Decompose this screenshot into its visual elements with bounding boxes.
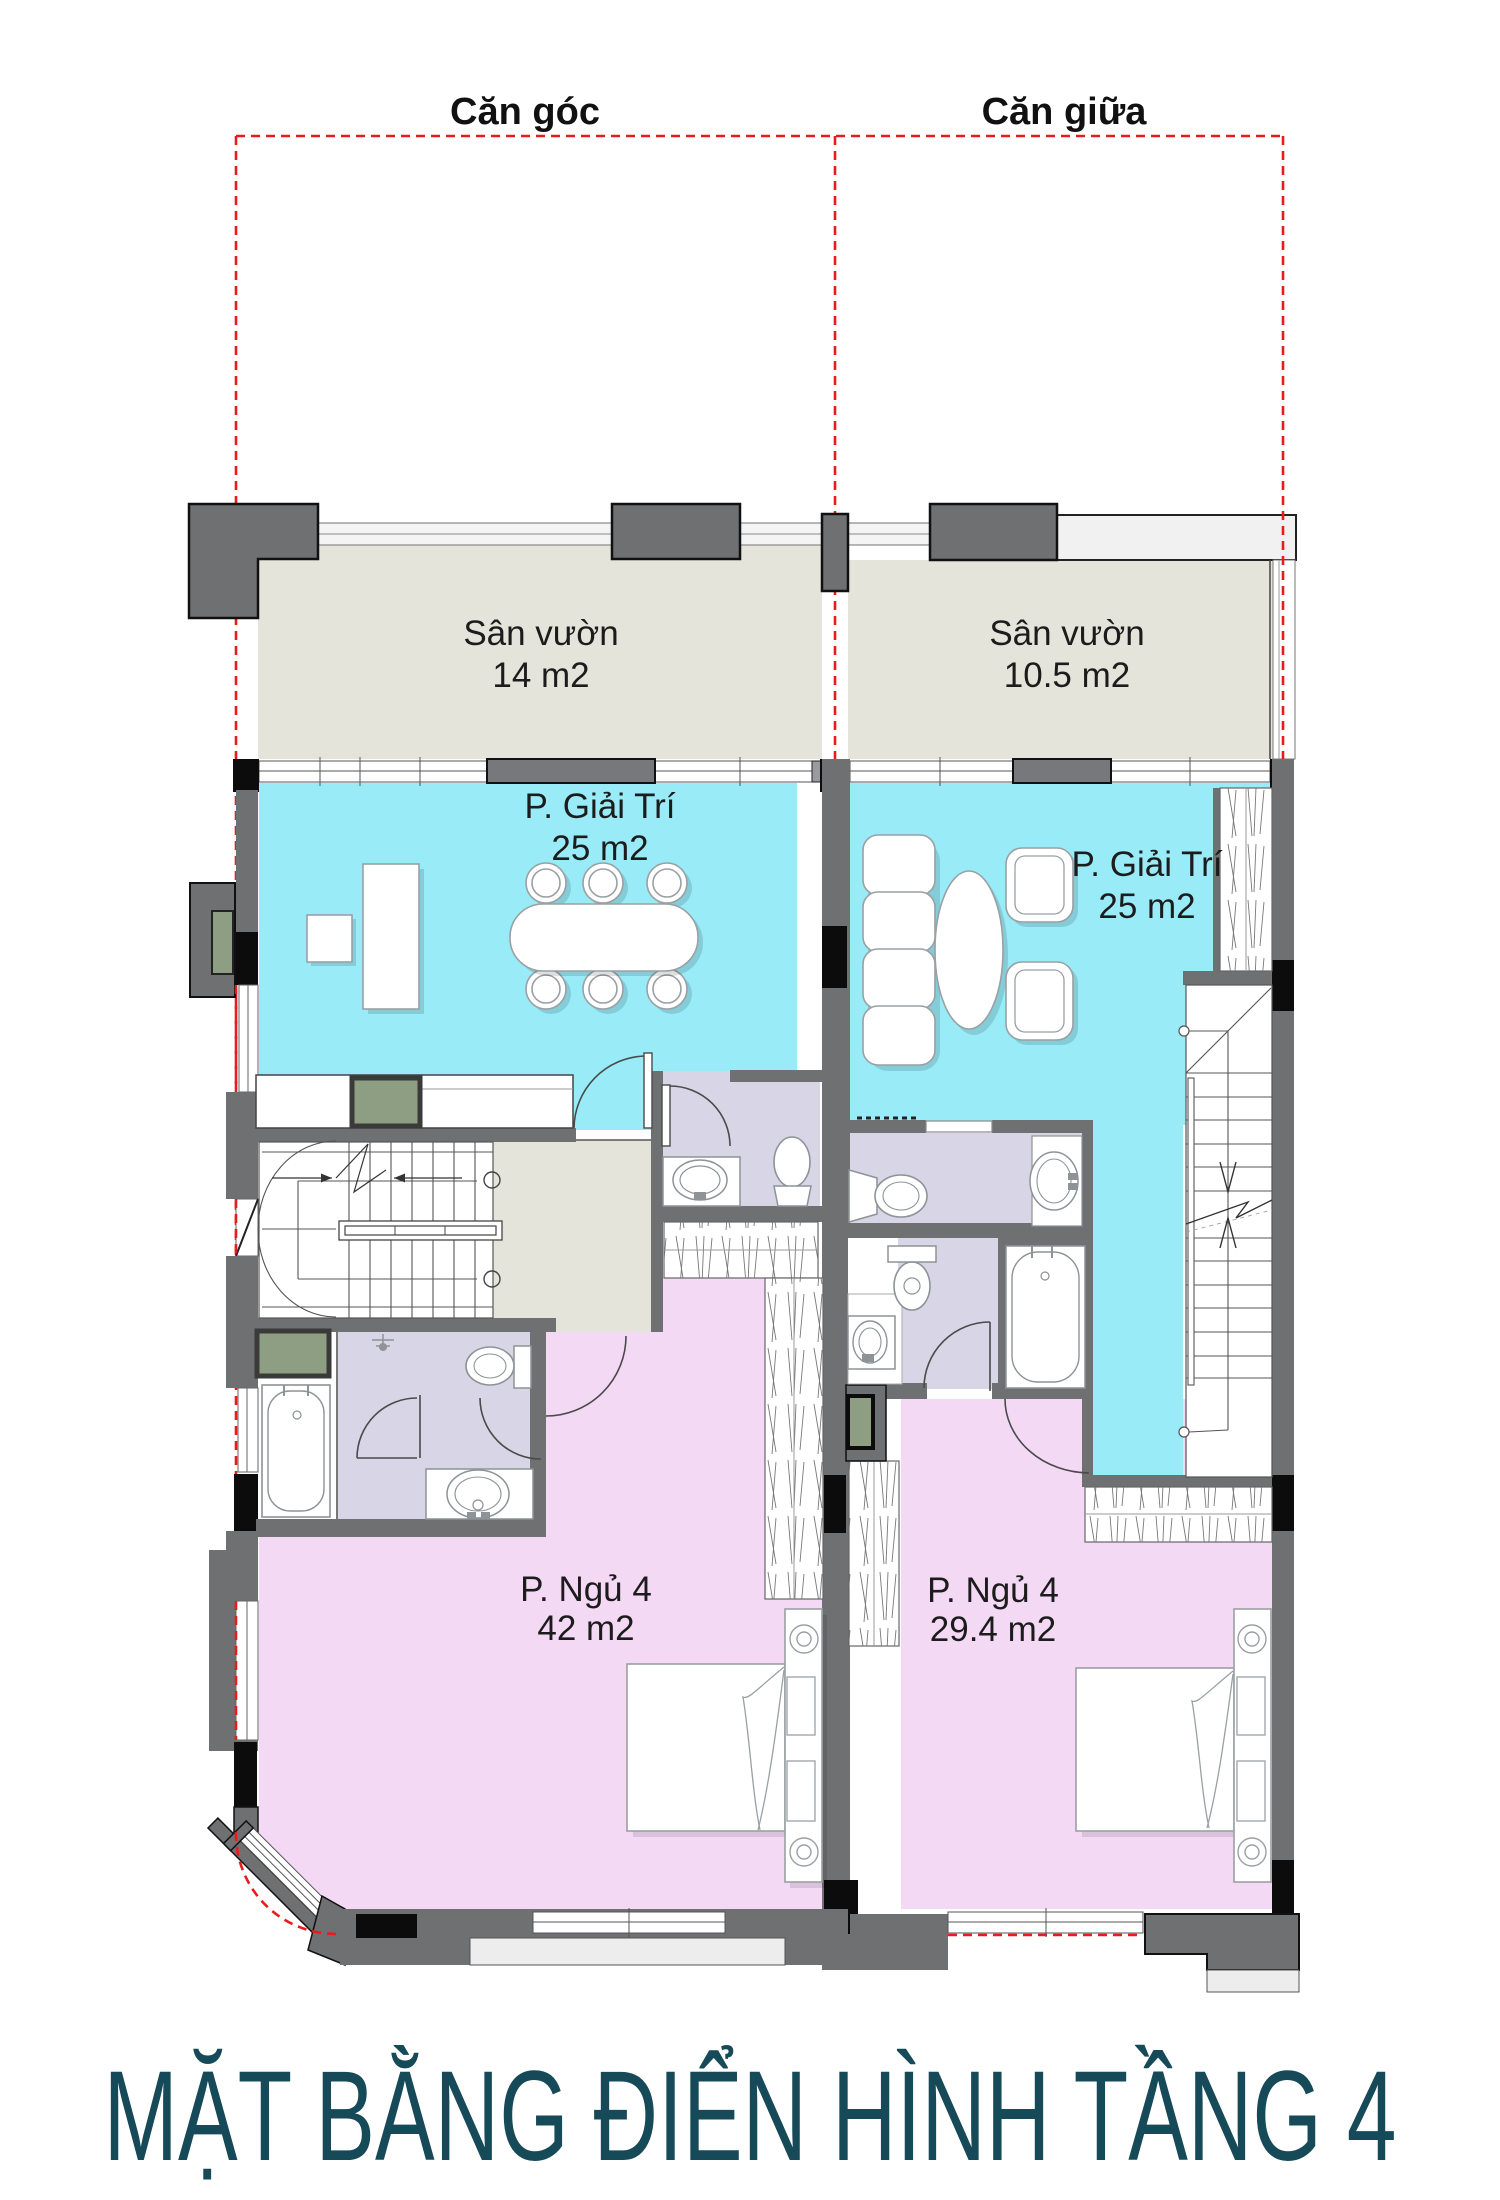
svg-text:29.4 m2: 29.4 m2	[930, 1610, 1056, 1649]
svg-text:MẶT BẰNG ĐIỂN HÌNH TẦNG 4: MẶT BẰNG ĐIỂN HÌNH TẦNG 4	[104, 2045, 1397, 2188]
svg-text:14 m2: 14 m2	[492, 656, 589, 695]
svg-text:Sân vườn: Sân vườn	[989, 614, 1144, 653]
svg-text:10.5 m2: 10.5 m2	[1004, 656, 1130, 695]
svg-text:Sân vườn: Sân vườn	[463, 614, 618, 653]
svg-text:P. Ngủ 4: P. Ngủ 4	[927, 1571, 1059, 1610]
svg-text:P. Giải Trí: P. Giải Trí	[524, 787, 675, 826]
svg-text:P. Giải Trí: P. Giải Trí	[1071, 845, 1222, 884]
svg-text:P. Ngủ 4: P. Ngủ 4	[520, 1570, 652, 1609]
svg-text:25 m2: 25 m2	[1098, 887, 1195, 926]
svg-text:42 m2: 42 m2	[537, 1609, 634, 1648]
svg-text:25 m2: 25 m2	[551, 829, 648, 868]
svg-text:Căn giữa: Căn giữa	[982, 91, 1148, 133]
svg-text:Căn góc: Căn góc	[450, 91, 600, 133]
